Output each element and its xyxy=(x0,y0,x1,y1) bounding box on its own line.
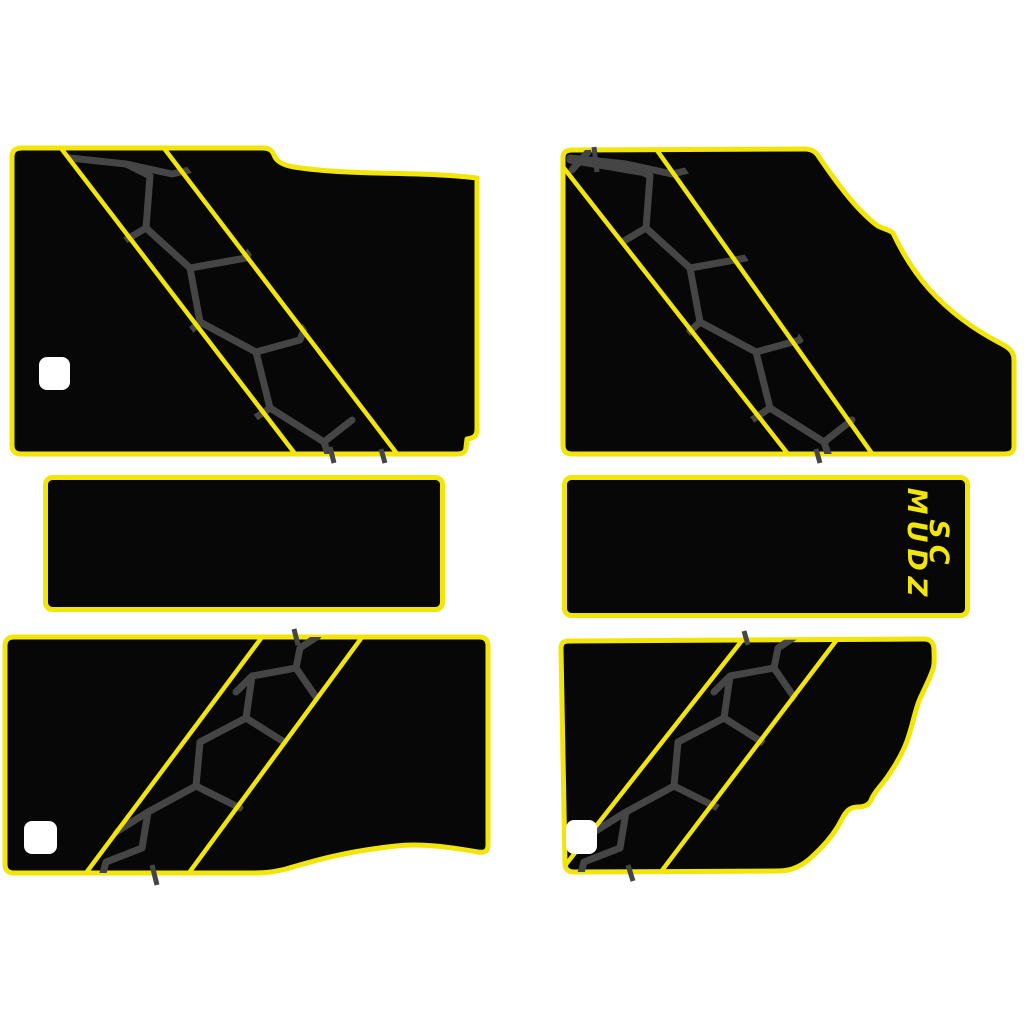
mounting-cutout xyxy=(24,821,57,854)
mounting-cutout xyxy=(39,357,70,390)
brand-logo-line2: MUDZ xyxy=(905,488,927,603)
panel-outline xyxy=(46,478,443,610)
lower-door-panel-right xyxy=(556,629,934,884)
panel-outline xyxy=(12,148,477,454)
panel-outline xyxy=(5,637,488,873)
panel-outline xyxy=(563,149,1014,454)
decal-kit-sheet: SC MUDZ xyxy=(0,0,1024,1024)
brand-logo: SC MUDZ xyxy=(867,485,987,605)
upper-door-panel-left xyxy=(12,143,477,466)
mounting-cutout xyxy=(566,820,597,854)
lower-door-panel-left xyxy=(5,629,488,884)
rocker-panel-left xyxy=(46,478,443,610)
upper-door-panel-right xyxy=(556,139,1014,466)
